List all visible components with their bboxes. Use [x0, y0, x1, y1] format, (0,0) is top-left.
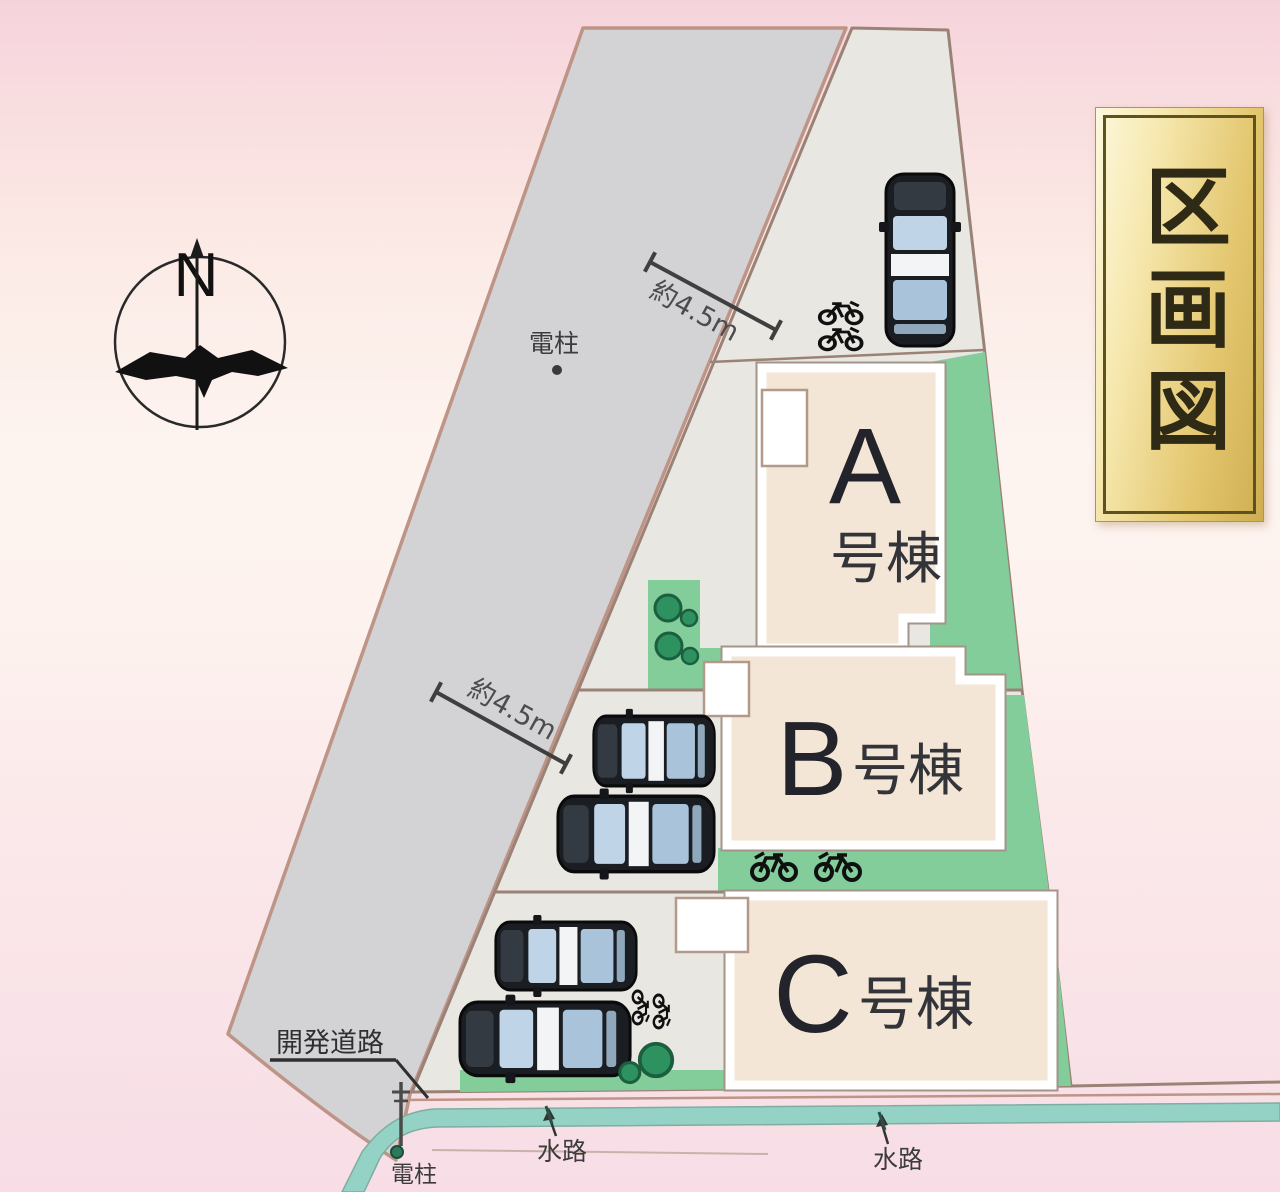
building-a-letter: A — [829, 405, 901, 526]
building-c: C 号棟 — [676, 896, 1052, 1085]
utility-pole-bottom-dot — [391, 1146, 403, 1158]
porch-b — [704, 662, 749, 716]
compass-bird-icon — [115, 345, 288, 398]
corner-road-text: 開発道路 — [276, 1028, 384, 1059]
waterway-lower-line — [432, 1150, 768, 1154]
car-icon — [460, 995, 630, 1084]
building-c-letter: C — [773, 933, 852, 1056]
plot-map-title: 区画図 — [1137, 162, 1223, 468]
utility-pole-top-dot — [552, 365, 562, 375]
building-b-letter: B — [777, 700, 848, 818]
plot-map-banner: 区画図 — [1095, 107, 1264, 522]
compass: N — [115, 238, 288, 430]
building-c-suffix: 号棟 — [858, 970, 974, 1038]
plot-map-banner-frame: 区画図 — [1103, 115, 1256, 514]
building-a: A 号棟 — [762, 368, 942, 648]
porch-c — [676, 898, 748, 952]
utility-pole-bottom-label: 電柱 — [391, 1162, 437, 1188]
car-icon — [879, 174, 961, 346]
utility-pole-top-label: 電柱 — [529, 329, 579, 358]
building-a-suffix: 号棟 — [830, 527, 942, 592]
car-icon — [558, 788, 714, 879]
site-plan: A 号棟 B 号棟 C 号棟 約4.5m 約4.5m — [0, 0, 1280, 1192]
outer-boundary-right — [1071, 1082, 1280, 1086]
lot-waterway-edge — [400, 1094, 1280, 1100]
building-b: B 号棟 — [704, 652, 1000, 845]
waterway-left-text: 水路 — [537, 1137, 587, 1166]
waterway-band — [342, 1103, 1280, 1192]
car-icon — [593, 709, 714, 793]
building-b-suffix: 号棟 — [852, 739, 964, 804]
porch-a — [762, 390, 807, 466]
car-icon — [496, 915, 637, 997]
waterway-right-text: 水路 — [873, 1145, 923, 1174]
